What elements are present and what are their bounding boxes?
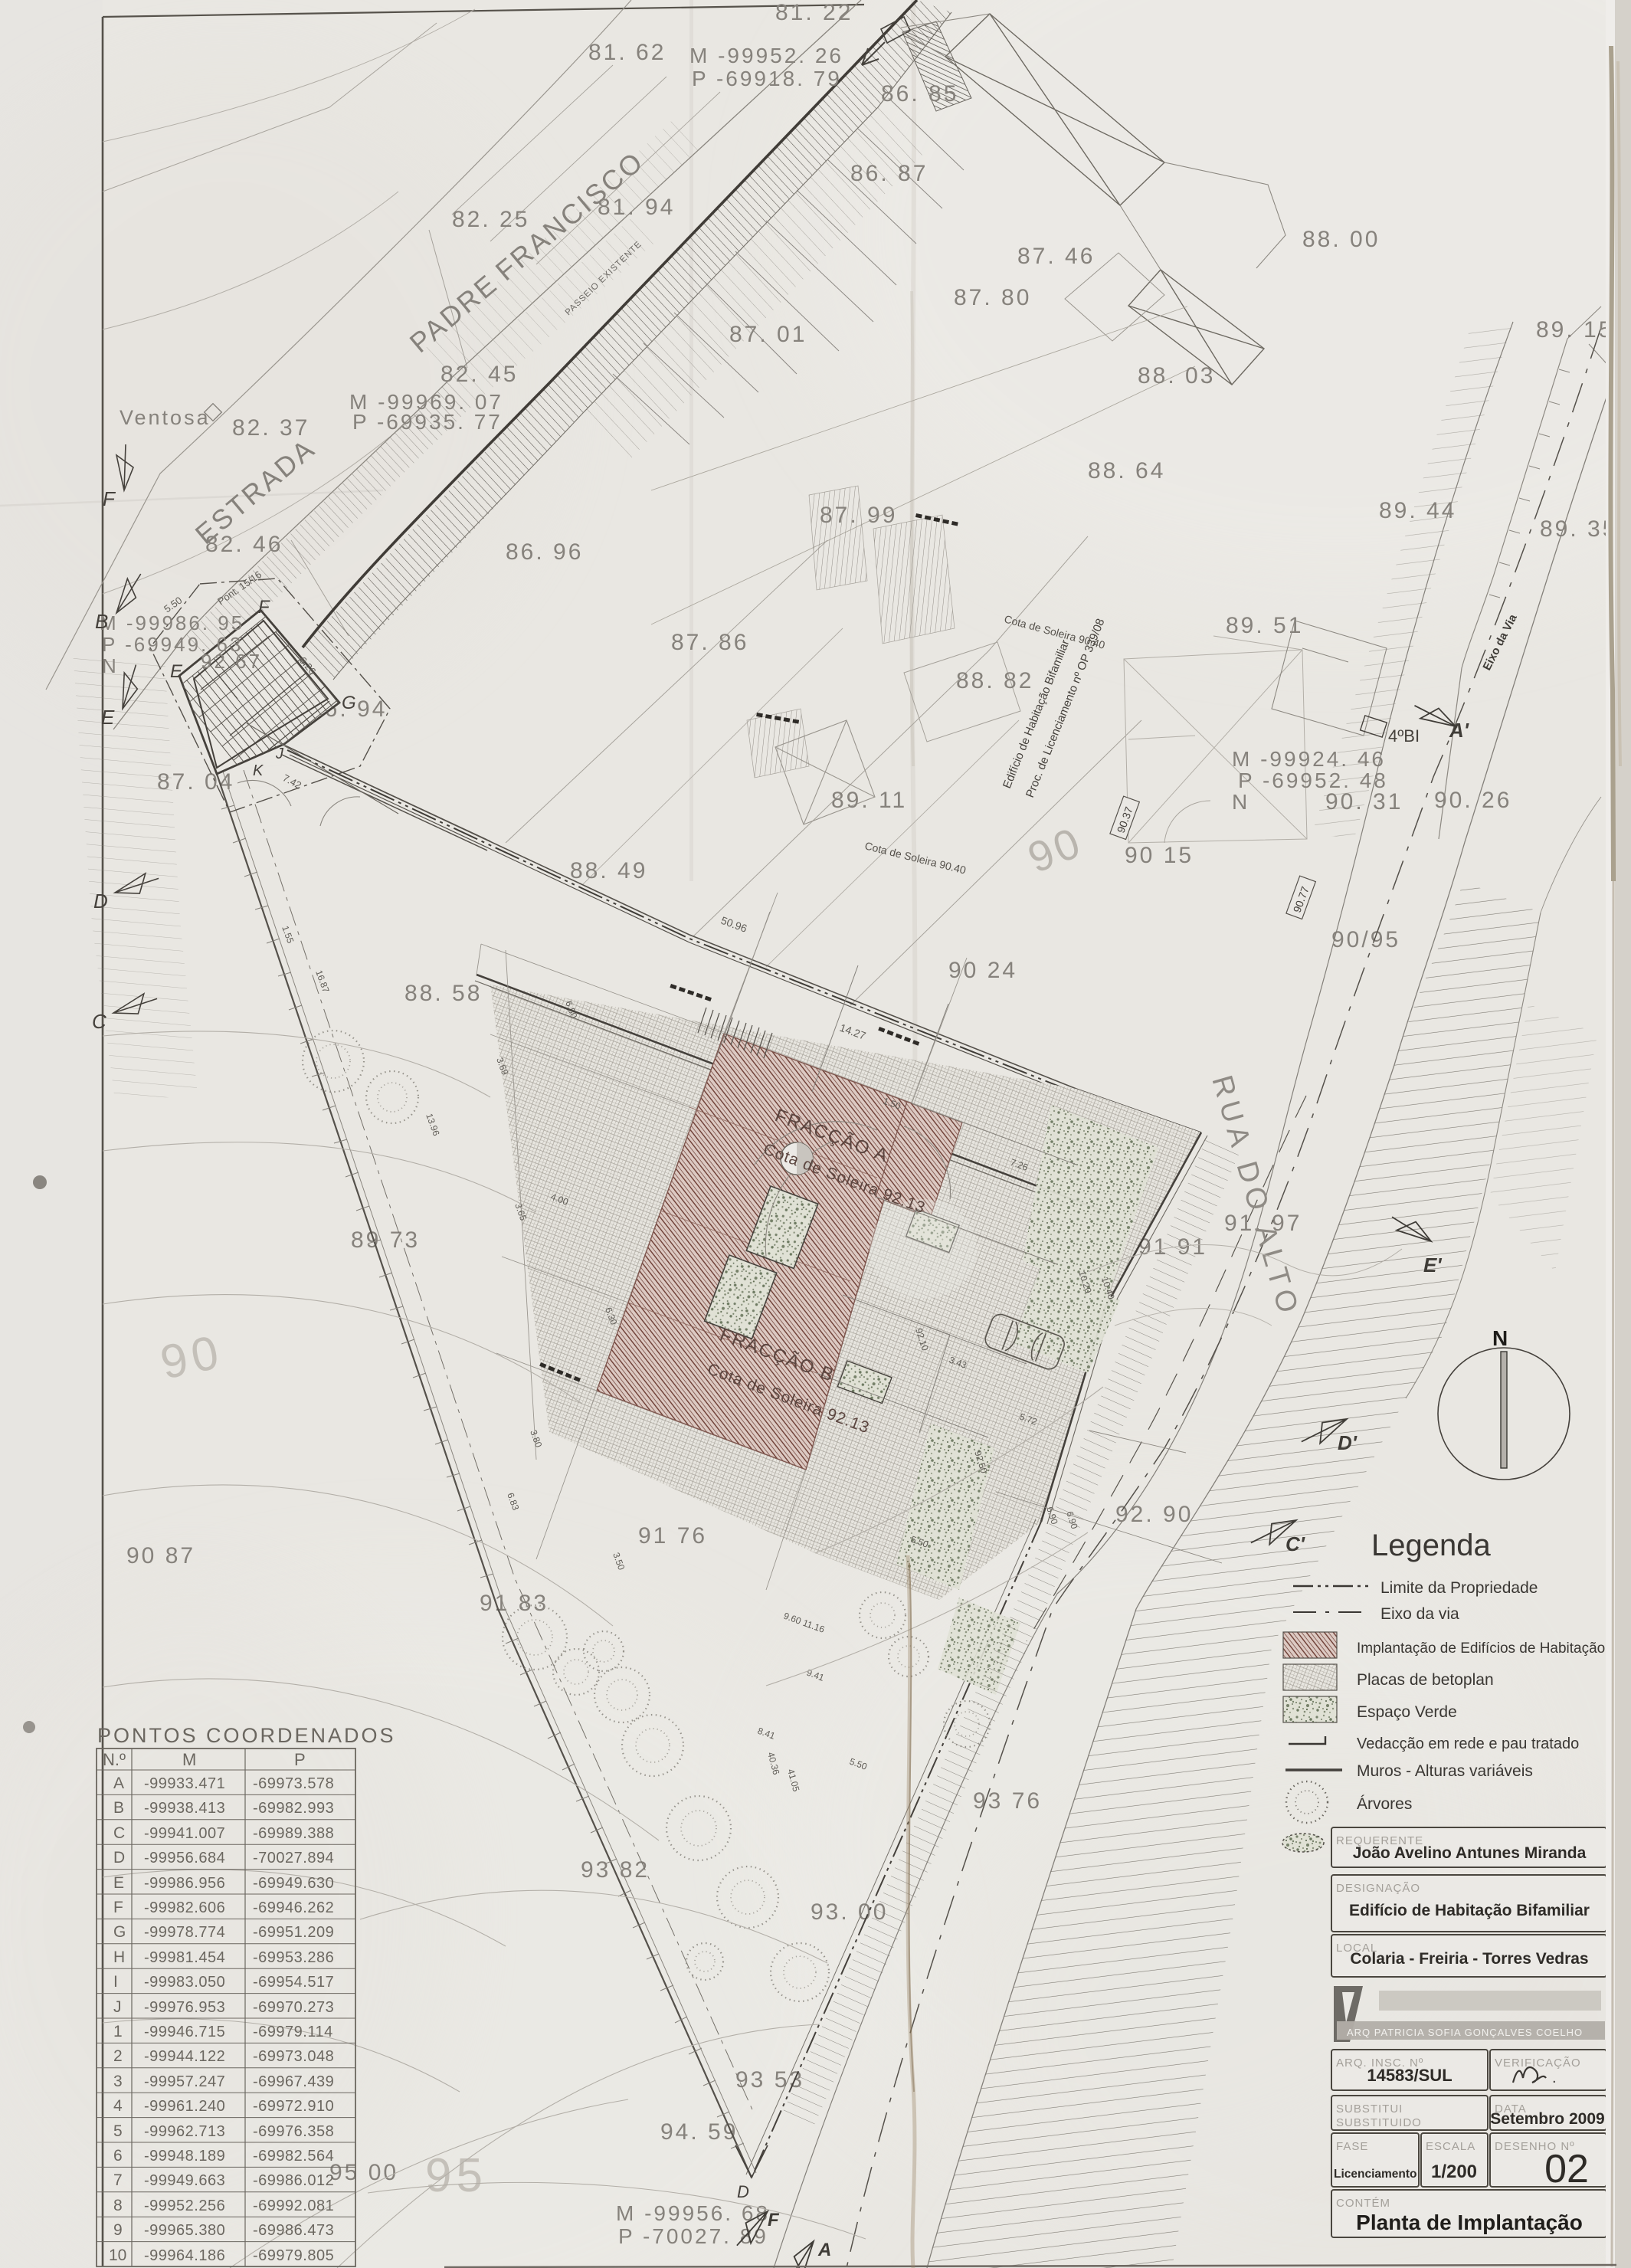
svg-text:81. 62: 81. 62 [588,40,666,65]
svg-text:Planta de Implantação: Planta de Implantação [1356,2211,1583,2234]
svg-text:82. 37: 82. 37 [232,415,309,441]
svg-text:9: 9 [113,2221,123,2239]
svg-text:-99956.684: -99956.684 [144,1850,225,1867]
svg-text:-99965.380: -99965.380 [144,2222,225,2239]
svg-text:-69986.012: -69986.012 [253,2172,334,2189]
svg-text:7: 7 [113,2171,123,2189]
svg-text:P -69935. 77: P -69935. 77 [352,410,503,434]
svg-text:8: 8 [113,2197,123,2214]
svg-text:1: 1 [113,2023,123,2040]
svg-text:A': A' [1449,719,1469,742]
svg-text:-99964.186: -99964.186 [144,2247,225,2264]
svg-text:87. 80: 87. 80 [954,285,1031,310]
svg-text:-69951.209: -69951.209 [253,1924,334,1941]
svg-text:-99982.606: -99982.606 [144,1899,225,1916]
svg-text:Licenciamento: Licenciamento [1334,2168,1417,2181]
svg-text:Vedacção em rede e pau tratado: Vedacção em rede e pau tratado [1357,1735,1579,1752]
svg-text:-69979.805: -69979.805 [253,2247,334,2264]
svg-text:Muros - Alturas variáveis: Muros - Alturas variáveis [1357,1762,1533,1780]
svg-text:C: C [113,1824,125,1842]
svg-text:E: E [113,1874,124,1892]
svg-text:-69973.048: -69973.048 [253,2048,334,2065]
svg-text:.: . [1552,2070,1557,2086]
svg-text:-99986.956: -99986.956 [144,1875,225,1892]
svg-text:J: J [113,1998,122,2016]
svg-text:6: 6 [113,2147,123,2165]
svg-text:M -99986. 95: M -99986. 95 [100,611,244,634]
svg-text:Placas de betoplan: Placas de betoplan [1357,1671,1494,1689]
svg-text:-99962.713: -99962.713 [144,2123,225,2140]
svg-text:B: B [113,1799,124,1817]
svg-text:92 67: 92 67 [201,650,262,673]
svg-text:A: A [113,1775,124,1792]
svg-text:N: N [102,654,119,677]
svg-text:02: 02 [1544,2147,1589,2191]
svg-text:SUBSTITUIDO: SUBSTITUIDO [1336,2116,1422,2129]
svg-text:81. 94: 81. 94 [598,195,675,220]
svg-text:C': C' [1285,1532,1305,1555]
svg-text:-69979.114: -69979.114 [253,2024,333,2040]
svg-text:H: H [113,1948,125,1966]
svg-text:-69970.273: -69970.273 [253,1999,334,2016]
svg-text:90 15: 90 15 [1125,843,1194,868]
svg-text:-99952.256: -99952.256 [144,2198,225,2214]
svg-text:Árvores: Árvores [1357,1795,1412,1813]
svg-text:-69989.388: -69989.388 [253,1825,334,1842]
svg-text:89 73: 89 73 [351,1227,420,1253]
svg-text:-69992.081: -69992.081 [253,2198,334,2214]
svg-text:-69973.578: -69973.578 [253,1775,334,1792]
svg-text:-99976.953: -99976.953 [144,1999,225,2016]
svg-text:SUBSTITUI: SUBSTITUI [1336,2102,1403,2116]
svg-text:Edifício de Habitação Bifamili: Edifício de Habitação Bifamiliar [1349,1902,1590,1919]
svg-text:82. 25: 82. 25 [452,207,529,232]
svg-text:90. 26: 90. 26 [1434,788,1511,813]
svg-text:F: F [768,2210,780,2230]
svg-text:E: E [170,661,183,682]
svg-text:-69976.358: -69976.358 [253,2123,334,2140]
svg-text:Implantação de Edifícios de Ha: Implantação de Edifícios de Habitação [1357,1640,1605,1657]
svg-text:-69954.517: -69954.517 [253,1974,334,1991]
svg-text:90 87: 90 87 [126,1543,195,1568]
svg-text:-99946.715: -99946.715 [144,2024,225,2040]
svg-text:95: 95 [425,2149,487,2202]
svg-text:F: F [103,487,116,510]
svg-text:-99938.413: -99938.413 [144,1800,225,1817]
svg-text:-99941.007: -99941.007 [144,1825,225,1842]
svg-text:F: F [258,597,270,618]
svg-text:CONTÉM: CONTÉM [1336,2197,1390,2210]
svg-text:Setembro 2009: Setembro 2009 [1490,2110,1604,2128]
svg-text:-99949.663: -99949.663 [144,2172,225,2189]
svg-text:95 00: 95 00 [329,2160,398,2185]
svg-text:-99948.189: -99948.189 [144,2148,225,2165]
svg-text:E': E' [1423,1254,1442,1277]
svg-text:10: 10 [109,2247,126,2264]
svg-text:90/95: 90/95 [1331,927,1400,952]
svg-text:91 76: 91 76 [638,1523,707,1549]
svg-text:D: D [113,1849,125,1867]
svg-text:-99983.050: -99983.050 [144,1974,225,1991]
svg-text:82. 46: 82. 46 [205,532,283,557]
svg-text:M -99952. 26: M -99952. 26 [689,44,843,67]
svg-text:-69967.439: -69967.439 [253,2073,334,2090]
svg-text:87. 01: 87. 01 [729,322,807,347]
svg-text:88. 49: 88. 49 [570,858,647,883]
svg-text:João Avelino Antunes Miranda: João Avelino Antunes Miranda [1353,1844,1587,1862]
svg-text:Eixo da via: Eixo da via [1380,1605,1459,1623]
svg-text:86. 85: 86. 85 [881,81,958,107]
svg-text:89. 11: 89. 11 [831,788,907,813]
svg-text:Espaço Verde: Espaço Verde [1357,1703,1457,1721]
svg-text:N.º: N.º [103,1750,126,1769]
svg-text:86. 96: 86. 96 [506,539,583,565]
svg-text:G: G [342,693,356,713]
svg-text:Ventosa: Ventosa [120,406,211,429]
svg-text:DESIGNAÇÃO: DESIGNAÇÃO [1336,1882,1420,1895]
svg-text:F: F [113,1899,123,1916]
svg-text:-69972.910: -69972.910 [253,2098,334,2115]
svg-text:P -69918. 79: P -69918. 79 [692,67,842,90]
svg-text:Limite da Propriedade: Limite da Propriedade [1380,1579,1538,1597]
svg-text:-99961.240: -99961.240 [144,2098,225,2115]
svg-text:82. 45: 82. 45 [441,362,518,387]
svg-text:I: I [113,1973,118,1991]
svg-text:FASE: FASE [1336,2140,1368,2153]
svg-text:D': D' [1338,1431,1358,1454]
svg-text:G: G [113,1923,126,1941]
svg-text:-69949.630: -69949.630 [253,1875,334,1892]
svg-text:P: P [294,1750,306,1769]
svg-text:87. 46: 87. 46 [1017,244,1095,269]
svg-text:-69982.564: -69982.564 [253,2148,334,2165]
svg-text:86. 87: 86. 87 [850,161,928,186]
svg-text:93 76: 93 76 [973,1788,1042,1814]
svg-text:K: K [253,762,264,779]
svg-text:4: 4 [113,2097,123,2115]
svg-text:ARQ PATRICIA SOFIA GONÇALVES C: ARQ PATRICIA SOFIA GONÇALVES COELHO [1347,2027,1583,2038]
svg-text:M: M [182,1750,196,1769]
svg-text:5: 5 [113,2122,123,2140]
svg-text:14583/SUL: 14583/SUL [1367,2066,1452,2085]
svg-text:J: J [275,746,284,762]
svg-text:E: E [101,706,115,729]
svg-text:D: D [93,890,108,913]
svg-text:ESCALA: ESCALA [1426,2140,1475,2153]
svg-text:88. 00: 88. 00 [1302,227,1380,252]
svg-text:2: 2 [113,2047,123,2065]
svg-text:81. 22: 81. 22 [775,0,853,25]
svg-text:87. 86: 87. 86 [671,630,748,655]
svg-text:VERIFICAÇÃO: VERIFICAÇÃO [1495,2057,1581,2070]
svg-text:4ºBI: 4ºBI [1388,726,1420,746]
svg-text:-99981.454: -99981.454 [144,1949,225,1966]
svg-text:-99978.774: -99978.774 [144,1924,225,1941]
svg-text:-69982.993: -69982.993 [253,1800,334,1817]
svg-text:88. 58: 88. 58 [404,981,482,1006]
svg-text:-69946.262: -69946.262 [253,1899,334,1916]
svg-text:-70027.894: -70027.894 [253,1850,334,1867]
svg-text:N: N [1232,790,1249,814]
svg-text:89. 51: 89. 51 [1226,613,1303,638]
svg-text:PONTOS COORDENADOS: PONTOS COORDENADOS [97,1724,396,1747]
svg-text:-99933.471: -99933.471 [144,1775,225,1792]
svg-text:D: D [737,2182,749,2201]
svg-text:-99944.122: -99944.122 [144,2048,225,2065]
svg-text:88. 64: 88. 64 [1088,458,1165,483]
svg-text:-69986.473: -69986.473 [253,2222,334,2239]
svg-text:-69953.286: -69953.286 [253,1949,334,1966]
svg-text:88. 03: 88. 03 [1138,363,1215,388]
svg-text:89. 15: 89. 15 [1536,317,1613,342]
svg-text:1/200: 1/200 [1431,2161,1477,2182]
svg-text:87. 99: 87. 99 [820,503,897,528]
svg-text:Colaria - Freiria - Torres Ved: Colaria - Freiria - Torres Vedras [1350,1950,1588,1968]
svg-text:C: C [92,1010,106,1033]
svg-text:N: N [1492,1326,1508,1350]
svg-text:-99957.247: -99957.247 [144,2073,225,2090]
svg-text:88. 82: 88. 82 [956,668,1033,693]
svg-text:Legenda: Legenda [1371,1529,1491,1562]
svg-text:B: B [95,610,108,633]
svg-text:A: A [817,2240,831,2260]
svg-text:3: 3 [113,2073,123,2090]
